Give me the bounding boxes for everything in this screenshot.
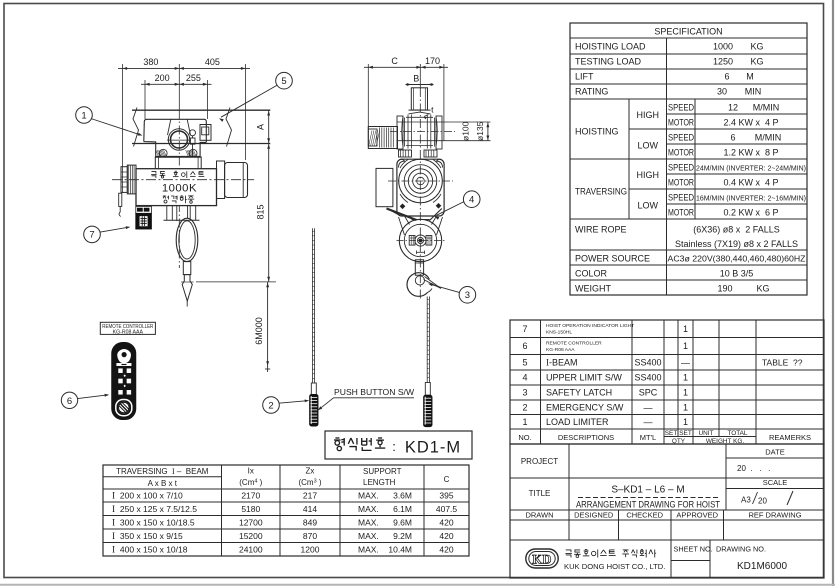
- svg-text:20 . . .: 20 . . .: [737, 464, 770, 473]
- svg-text:1000K: 1000K: [162, 182, 197, 194]
- svg-text:1250: 1250: [713, 57, 733, 67]
- svg-text:420: 420: [439, 545, 453, 555]
- svg-text:Ix: Ix: [248, 467, 254, 476]
- svg-text:HOISTING: HOISTING: [575, 127, 619, 137]
- svg-text:TRAVERSING I – BEAM: TRAVERSING I – BEAM: [116, 467, 209, 476]
- svg-text:420: 420: [439, 518, 453, 528]
- svg-text:24M/MIN (INVERTER: 2~24M/MIN): 24M/MIN (INVERTER: 2~24M/MIN): [696, 163, 806, 172]
- svg-text:170: 170: [425, 56, 440, 66]
- svg-text:MT'L: MT'L: [640, 433, 656, 442]
- svg-text:2.4 KW x 4 P: 2.4 KW x 4 P: [723, 118, 778, 128]
- svg-text:1: 1: [683, 341, 688, 351]
- svg-text:414: 414: [303, 504, 317, 514]
- svg-text:PROJECT: PROJECT: [521, 457, 558, 466]
- svg-text:SS400: SS400: [634, 357, 661, 367]
- svg-text:HIGH: HIGH: [637, 170, 660, 180]
- svg-text:5: 5: [281, 76, 286, 87]
- svg-text:1000: 1000: [713, 42, 733, 52]
- svg-text:(Cm3 ): (Cm3 ): [298, 478, 321, 487]
- svg-text:KD1-M: KD1-M: [405, 439, 461, 457]
- svg-text:DESIGNED: DESIGNED: [574, 510, 614, 519]
- svg-text:SCALE: SCALE: [763, 478, 788, 487]
- svg-text:KD: KD: [532, 553, 552, 567]
- svg-text:0.2 KW x 6 P: 0.2 KW x 6 P: [723, 208, 778, 218]
- svg-text:HIGH: HIGH: [637, 110, 660, 120]
- svg-text:405: 405: [205, 57, 220, 67]
- svg-text:420: 420: [439, 531, 453, 541]
- svg-text:12700: 12700: [239, 518, 263, 528]
- svg-text:6: 6: [67, 396, 72, 407]
- svg-text:MOTOR: MOTOR: [668, 208, 694, 218]
- svg-text:REMOTE CONTROLLER: REMOTE CONTROLLER: [546, 341, 602, 347]
- svg-text:217: 217: [303, 491, 317, 501]
- svg-text:1200: 1200: [301, 545, 320, 555]
- svg-text:380: 380: [143, 57, 158, 67]
- svg-text:TRAVERSING: TRAVERSING: [575, 187, 627, 197]
- svg-text:190: 190: [717, 284, 732, 294]
- svg-text:4: 4: [469, 195, 474, 206]
- svg-text:LOAD LIMITER: LOAD LIMITER: [546, 417, 609, 427]
- svg-text:2: 2: [268, 400, 273, 411]
- svg-text:B: B: [413, 73, 419, 83]
- svg-text:WIRE ROPE: WIRE ROPE: [575, 225, 627, 235]
- svg-text:MAX.: MAX.: [358, 531, 379, 541]
- svg-text:815: 815: [256, 204, 266, 219]
- svg-text:—: —: [681, 357, 690, 367]
- svg-text:2: 2: [522, 402, 527, 412]
- svg-text:(6X36) ø8 x 2 FALLS: (6X36) ø8 x 2 FALLS: [693, 225, 780, 235]
- svg-text:M/MIN: M/MIN: [753, 103, 780, 113]
- svg-text:S–KD1 – L6 – M: S–KD1 – L6 – M: [611, 485, 684, 496]
- svg-text:—: —: [644, 402, 653, 412]
- svg-text:SS400: SS400: [634, 373, 661, 383]
- svg-text:3: 3: [522, 388, 527, 398]
- svg-text:24100: 24100: [239, 545, 263, 555]
- svg-text:4: 4: [522, 373, 527, 383]
- svg-text:1: 1: [683, 402, 688, 412]
- svg-text:I 400 x 150 x 10/18: I 400 x 150 x 10/18: [112, 545, 188, 556]
- svg-text:407.5: 407.5: [436, 504, 458, 514]
- svg-text:LOW: LOW: [637, 201, 658, 211]
- svg-text:ARRANGEMENT DRAWING FOR HOIST: ARRANGEMENT DRAWING FOR HOIST: [576, 500, 720, 510]
- svg-text:MAX.: MAX.: [358, 518, 379, 528]
- svg-text:Stainless (7X19) ø8 x 2 FALLS: Stainless (7X19) ø8 x 2 FALLS: [675, 239, 798, 249]
- svg-text:KD1M6000: KD1M6000: [737, 561, 787, 572]
- svg-text:KG-R08 AAA: KG-R08 AAA: [113, 329, 144, 335]
- svg-text:MOTOR: MOTOR: [668, 148, 694, 158]
- svg-text:KG: KG: [750, 42, 763, 52]
- svg-text:7: 7: [89, 230, 94, 241]
- svg-text:6: 6: [730, 133, 735, 143]
- svg-text:EMERGENCY S/W: EMERGENCY S/W: [546, 402, 624, 412]
- svg-text:I 250 x 125 x 7.5/12.5: I 250 x 125 x 7.5/12.5: [112, 504, 197, 515]
- svg-text:3.6M: 3.6M: [393, 491, 412, 501]
- svg-text:16M/MIN (INVERTER: 2~16M/MIN): 16M/MIN (INVERTER: 2~16M/MIN): [696, 193, 806, 202]
- svg-text:DRAWING NO.: DRAWING NO.: [716, 545, 766, 554]
- svg-text:I-BEAM: I-BEAM: [546, 357, 578, 367]
- svg-text:KG: KG: [750, 57, 763, 67]
- svg-text:REAMERKS: REAMERKS: [769, 433, 811, 442]
- svg-text:SPECIFICATION: SPECIFICATION: [654, 26, 722, 36]
- svg-text:RATING: RATING: [575, 87, 608, 97]
- svg-text:30: 30: [717, 87, 727, 97]
- svg-text:6: 6: [724, 72, 729, 82]
- svg-text:COLOR: COLOR: [575, 269, 608, 279]
- svg-text:DRAWN: DRAWN: [525, 510, 553, 519]
- svg-text:NO.: NO.: [518, 433, 531, 442]
- svg-text:1: 1: [683, 373, 688, 383]
- svg-text:1.2 KW x 8 P: 1.2 KW x 8 P: [723, 148, 778, 158]
- svg-text:TESTING LOAD: TESTING LOAD: [575, 57, 642, 67]
- svg-text:SPEED: SPEED: [668, 193, 694, 203]
- svg-text:20: 20: [758, 497, 767, 506]
- svg-text:MOTOR: MOTOR: [668, 118, 694, 128]
- svg-text:12: 12: [728, 103, 738, 113]
- svg-text:CHECKED: CHECKED: [626, 510, 663, 519]
- svg-text:MAX.: MAX.: [358, 504, 379, 514]
- svg-text:SAFETY LATCH: SAFETY LATCH: [546, 388, 612, 398]
- svg-text:395: 395: [439, 491, 453, 501]
- svg-text:ø135: ø135: [475, 121, 485, 141]
- svg-text:TITLE: TITLE: [529, 489, 551, 498]
- svg-text:KG: KG: [756, 284, 769, 294]
- svg-text:200: 200: [155, 73, 170, 83]
- svg-text:MIN: MIN: [745, 87, 762, 97]
- svg-text:A3: A3: [741, 496, 751, 505]
- svg-text:6: 6: [522, 341, 527, 351]
- svg-text:5: 5: [522, 357, 527, 367]
- svg-text:POWER SOURCE: POWER SOURCE: [575, 254, 650, 264]
- svg-text:7: 7: [522, 324, 527, 334]
- svg-text:0.4 KW x 4 P: 0.4 KW x 4 P: [723, 178, 778, 188]
- svg-text:UPPER LIMIT S/W: UPPER LIMIT S/W: [546, 373, 622, 383]
- svg-text:10.4M: 10.4M: [388, 545, 412, 555]
- svg-text:SPEED: SPEED: [668, 133, 694, 143]
- svg-text:UNIT: UNIT: [699, 430, 714, 437]
- svg-text:I 300 x 150 x 10/18.5: I 300 x 150 x 10/18.5: [112, 518, 195, 529]
- svg-text:Zx: Zx: [306, 467, 315, 476]
- svg-text:TABLE ??: TABLE ??: [762, 357, 803, 367]
- svg-text:10 B 3/5: 10 B 3/5: [720, 269, 754, 279]
- svg-text:DESCRIPTIONS: DESCRIPTIONS: [558, 433, 614, 442]
- svg-text:1: 1: [81, 110, 86, 121]
- svg-text:WEIGHT: WEIGHT: [575, 284, 611, 294]
- svg-text:AC3ø 220V(380,440,460,480)60HZ: AC3ø 220V(380,440,460,480)60HZ: [668, 254, 806, 264]
- svg-text:9.6M: 9.6M: [393, 518, 412, 528]
- svg-text:REF DRAWING: REF DRAWING: [748, 510, 801, 519]
- svg-text:SET: SET: [665, 430, 678, 437]
- svg-text:1: 1: [683, 324, 688, 334]
- svg-text:SUPPORT: SUPPORT: [363, 467, 402, 476]
- svg-text:M/MIN: M/MIN: [755, 133, 782, 143]
- svg-text:6.1M: 6.1M: [393, 504, 412, 514]
- svg-text:MAX.: MAX.: [358, 545, 379, 555]
- svg-text:LOW: LOW: [637, 141, 658, 151]
- svg-text:SPEED: SPEED: [668, 163, 694, 173]
- svg-text:(Cm4 ): (Cm4 ): [239, 478, 262, 487]
- svg-text:C: C: [391, 56, 398, 66]
- svg-text:M: M: [746, 72, 754, 82]
- svg-text:A x B x t: A x B x t: [148, 479, 178, 488]
- svg-text:849: 849: [303, 518, 317, 528]
- svg-text:—: —: [644, 417, 653, 427]
- svg-text:PUSH BUTTON S/W: PUSH BUTTON S/W: [334, 387, 415, 397]
- svg-text:LIFT: LIFT: [575, 72, 594, 82]
- svg-text:5180: 5180: [241, 504, 260, 514]
- svg-text:15200: 15200: [239, 531, 263, 541]
- svg-text:KG-R08 AAA: KG-R08 AAA: [546, 347, 575, 353]
- svg-text:SHEET NO.: SHEET NO.: [674, 545, 713, 554]
- svg-text:HOIST OPERATION INDICATOR LIGH: HOIST OPERATION INDICATOR LIGHT: [546, 323, 634, 329]
- svg-text:t: t: [431, 105, 434, 115]
- svg-text:2170: 2170: [241, 491, 260, 501]
- svg-text:I 200 x 100 x 7/10: I 200 x 100 x 7/10: [112, 491, 183, 502]
- svg-text:I 350 x 150 x 9/15: I 350 x 150 x 9/15: [112, 531, 183, 542]
- svg-text:255: 255: [186, 73, 201, 83]
- svg-text:KUK DONG HOIST CO., LTD.: KUK DONG HOIST CO., LTD.: [564, 562, 665, 571]
- svg-text:MOTOR: MOTOR: [668, 178, 694, 188]
- svg-text:LENGTH: LENGTH: [363, 478, 396, 487]
- svg-text:SET: SET: [679, 430, 692, 437]
- svg-text:C: C: [444, 475, 450, 484]
- svg-text:ø100: ø100: [460, 121, 470, 141]
- svg-text:3: 3: [465, 290, 470, 301]
- svg-text:APPROVED: APPROVED: [676, 510, 718, 519]
- svg-text:1: 1: [522, 417, 527, 427]
- svg-text:1: 1: [683, 388, 688, 398]
- svg-text:HOISTING LOAD: HOISTING LOAD: [575, 42, 646, 52]
- svg-text:SPEED: SPEED: [668, 103, 694, 113]
- svg-text:DATE: DATE: [765, 448, 784, 457]
- svg-text:SPC: SPC: [639, 388, 658, 398]
- svg-text:MAX.: MAX.: [358, 491, 379, 501]
- svg-text::: :: [392, 439, 396, 454]
- svg-text:KNS-150HL: KNS-150HL: [546, 330, 572, 336]
- svg-text:6M000: 6M000: [254, 317, 264, 345]
- svg-text:TOTAL: TOTAL: [727, 430, 747, 437]
- svg-text:1: 1: [683, 417, 688, 427]
- svg-text:9.2M: 9.2M: [393, 531, 412, 541]
- svg-text:870: 870: [303, 531, 317, 541]
- svg-text:A: A: [255, 124, 265, 130]
